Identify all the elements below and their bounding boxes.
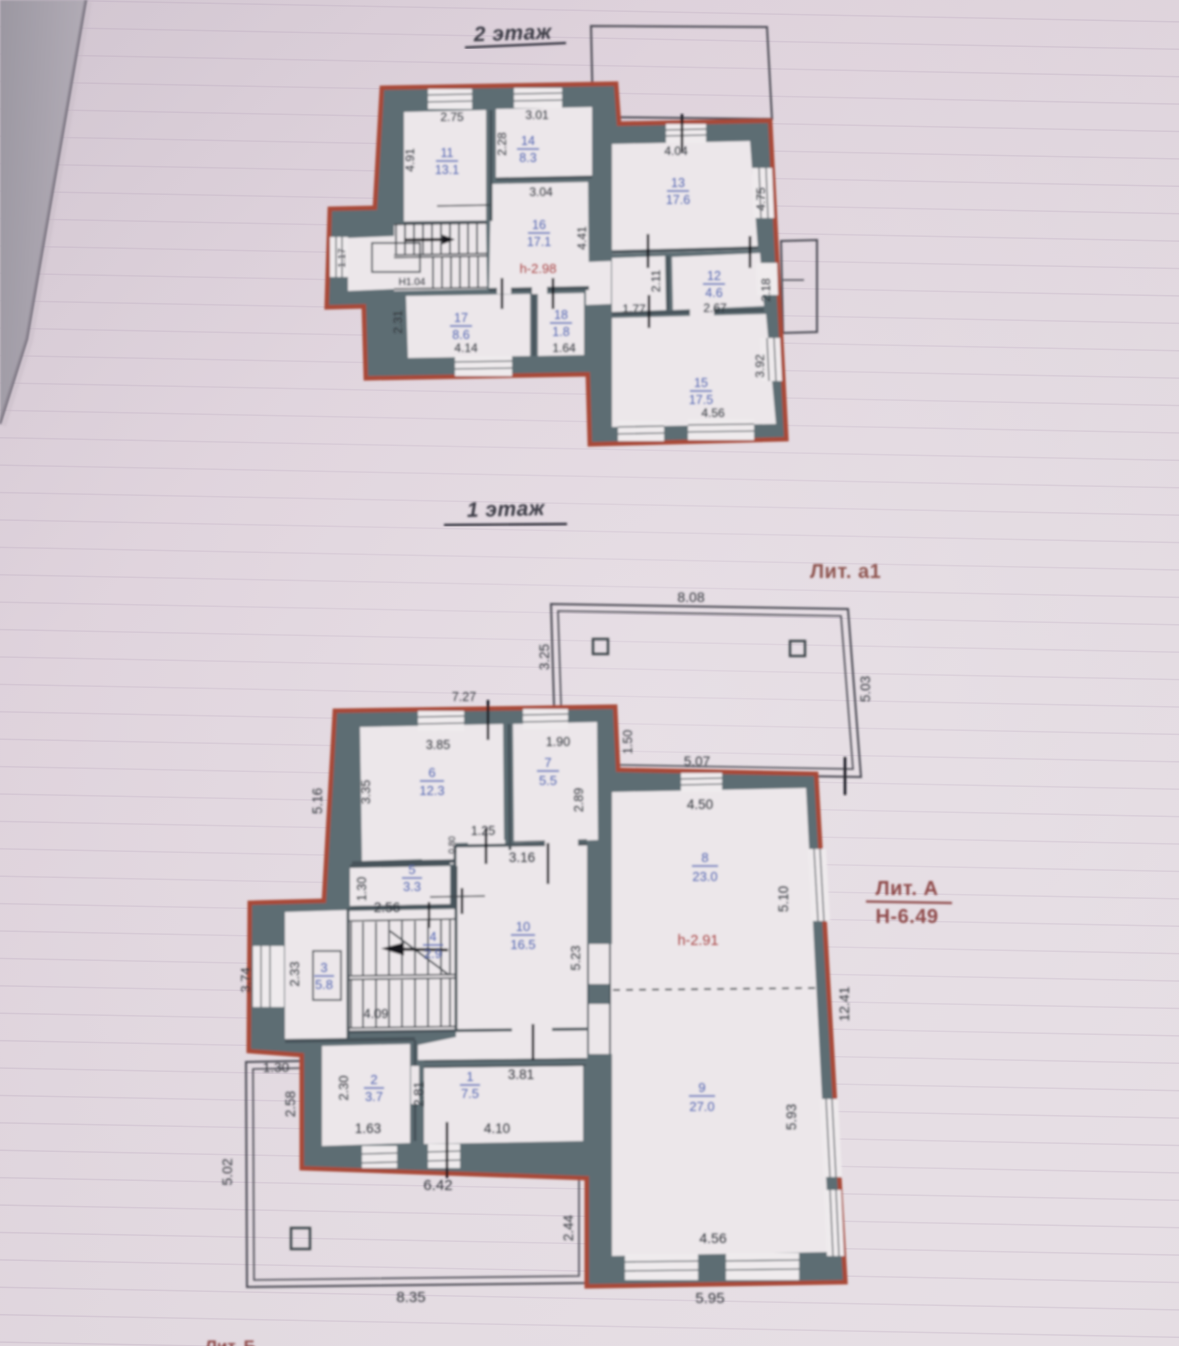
svg-text:1 этаж: 1 этаж xyxy=(467,497,547,522)
svg-text:4.14: 4.14 xyxy=(454,341,478,355)
svg-text:2.75: 2.75 xyxy=(440,110,464,124)
svg-text:5: 5 xyxy=(408,862,415,877)
svg-text:3.3: 3.3 xyxy=(403,879,421,894)
svg-text:2.33: 2.33 xyxy=(287,961,302,986)
svg-text:2.9: 2.9 xyxy=(424,946,442,961)
svg-text:4.50: 4.50 xyxy=(687,797,713,812)
svg-text:2.11: 2.11 xyxy=(649,269,663,292)
svg-text:5.95: 5.95 xyxy=(695,1290,724,1307)
svg-text:17: 17 xyxy=(454,311,468,325)
svg-text:1.50: 1.50 xyxy=(621,730,635,754)
svg-text:h-2.98: h-2.98 xyxy=(520,261,557,276)
svg-text:4.10: 4.10 xyxy=(484,1121,510,1136)
svg-text:2.67: 2.67 xyxy=(703,301,727,315)
svg-text:1.77: 1.77 xyxy=(622,302,646,316)
svg-text:3.74: 3.74 xyxy=(238,967,253,992)
svg-text:2.58: 2.58 xyxy=(283,1091,298,1117)
svg-text:18: 18 xyxy=(554,308,568,322)
svg-text:1.90: 1.90 xyxy=(546,735,570,749)
svg-text:2.81: 2.81 xyxy=(411,1081,426,1106)
svg-text:13.1: 13.1 xyxy=(435,163,459,177)
svg-text:4.56: 4.56 xyxy=(701,406,725,420)
svg-text:27.0: 27.0 xyxy=(689,1099,714,1114)
svg-text:5.16: 5.16 xyxy=(310,788,325,814)
svg-text:2: 2 xyxy=(370,1072,377,1087)
svg-text:5.10: 5.10 xyxy=(776,886,791,912)
svg-text:5.23: 5.23 xyxy=(568,945,583,970)
svg-text:4.91: 4.91 xyxy=(403,148,417,172)
svg-text:3.92: 3.92 xyxy=(753,354,767,378)
svg-text:8.35: 8.35 xyxy=(396,1289,425,1306)
svg-text:3.16: 3.16 xyxy=(509,850,535,865)
svg-text:7: 7 xyxy=(544,755,551,770)
svg-text:Н1.04: Н1.04 xyxy=(399,277,426,288)
svg-text:h-2.91: h-2.91 xyxy=(677,933,718,949)
svg-text:4: 4 xyxy=(429,929,436,944)
svg-text:4.75: 4.75 xyxy=(754,187,768,211)
svg-text:17.5: 17.5 xyxy=(689,393,713,407)
svg-text:5.5: 5.5 xyxy=(539,773,557,788)
svg-text:5.93: 5.93 xyxy=(784,1104,799,1130)
svg-text:16: 16 xyxy=(532,218,546,232)
svg-text:4.04: 4.04 xyxy=(664,144,688,158)
svg-text:2.56: 2.56 xyxy=(374,900,400,915)
svg-text:2.30: 2.30 xyxy=(336,1075,351,1100)
svg-text:8.08: 8.08 xyxy=(677,589,704,605)
svg-text:3.35: 3.35 xyxy=(359,780,373,804)
svg-text:3.85: 3.85 xyxy=(426,738,450,752)
svg-text:1: 1 xyxy=(466,1069,473,1084)
svg-text:15: 15 xyxy=(694,376,708,390)
svg-text:1.30: 1.30 xyxy=(355,877,369,901)
svg-text:14: 14 xyxy=(521,134,535,148)
svg-text:8: 8 xyxy=(701,850,708,865)
svg-text:17.1: 17.1 xyxy=(527,235,551,249)
svg-text:1.25: 1.25 xyxy=(471,824,495,838)
svg-text:7.27: 7.27 xyxy=(452,690,476,704)
svg-text:8.6: 8.6 xyxy=(452,328,469,342)
svg-text:6.42: 6.42 xyxy=(423,1177,452,1194)
svg-text:1.8: 1.8 xyxy=(552,325,569,339)
svg-text:2 этаж: 2 этаж xyxy=(472,21,553,47)
svg-text:5.03: 5.03 xyxy=(858,676,873,702)
svg-text:2.44: 2.44 xyxy=(561,1214,576,1241)
svg-text:2.31: 2.31 xyxy=(391,310,405,334)
svg-text:17.6: 17.6 xyxy=(666,193,690,207)
svg-text:4.09: 4.09 xyxy=(363,1006,388,1021)
svg-text:3.7: 3.7 xyxy=(365,1089,383,1104)
svg-text:1.17: 1.17 xyxy=(337,248,348,268)
svg-text:Лит. Б: Лит. Б xyxy=(205,1337,256,1346)
svg-text:3.81: 3.81 xyxy=(508,1067,534,1082)
svg-text:1.64: 1.64 xyxy=(552,341,576,355)
svg-text:10: 10 xyxy=(516,919,530,934)
svg-text:1.30: 1.30 xyxy=(263,1060,289,1075)
svg-text:16.5: 16.5 xyxy=(510,937,535,952)
svg-text:12: 12 xyxy=(707,269,721,283)
svg-text:4.6: 4.6 xyxy=(705,286,722,300)
svg-text:3: 3 xyxy=(320,960,327,975)
svg-text:4.41: 4.41 xyxy=(575,226,589,250)
svg-text:Лит. а1: Лит. а1 xyxy=(810,561,881,583)
svg-text:11: 11 xyxy=(441,146,454,160)
svg-text:1.63: 1.63 xyxy=(355,1121,381,1136)
svg-text:3.04: 3.04 xyxy=(529,185,553,199)
svg-text:7.5: 7.5 xyxy=(461,1086,479,1101)
svg-text:3.25: 3.25 xyxy=(537,644,552,670)
svg-text:3.01: 3.01 xyxy=(525,108,549,122)
svg-text:8.3: 8.3 xyxy=(519,151,536,165)
svg-text:12.41: 12.41 xyxy=(836,986,852,1021)
svg-text:6: 6 xyxy=(428,765,435,780)
svg-text:4.56: 4.56 xyxy=(699,1230,726,1246)
svg-text:5.8: 5.8 xyxy=(315,977,333,992)
svg-text:2.18: 2.18 xyxy=(759,278,773,302)
svg-text:Лит. А: Лит. А xyxy=(876,878,939,900)
svg-text:Н-6.49: Н-6.49 xyxy=(875,906,938,928)
svg-text:0.80: 0.80 xyxy=(447,836,457,854)
svg-text:5.07: 5.07 xyxy=(684,754,710,769)
svg-text:5.02: 5.02 xyxy=(219,1158,235,1185)
svg-text:13: 13 xyxy=(671,176,685,190)
svg-text:2.28: 2.28 xyxy=(495,132,509,156)
svg-text:12.3: 12.3 xyxy=(419,783,444,798)
svg-text:9: 9 xyxy=(698,1080,705,1095)
svg-text:2.89: 2.89 xyxy=(572,788,586,812)
svg-text:23.0: 23.0 xyxy=(692,869,717,884)
